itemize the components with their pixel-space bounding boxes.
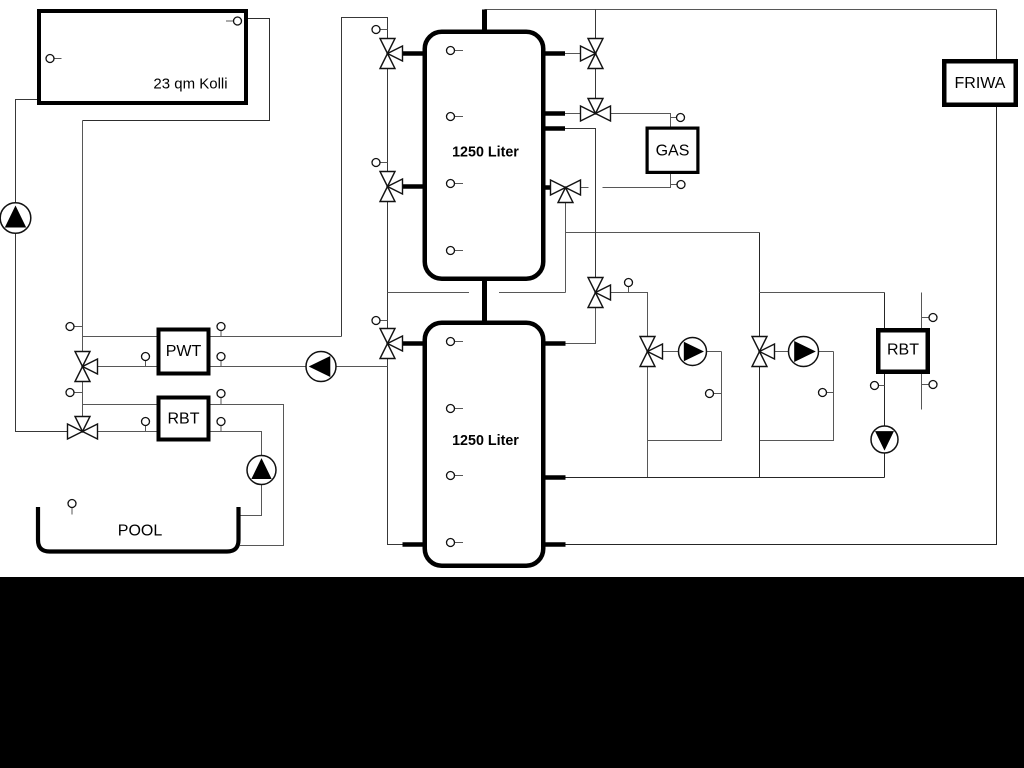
svg-text:1250 Liter: 1250 Liter [452, 145, 519, 161]
svg-text:GAS: GAS [656, 143, 690, 160]
svg-text:RBT: RBT [887, 341, 919, 358]
svg-text:POOL: POOL [118, 522, 163, 539]
svg-text:PWT: PWT [166, 343, 202, 360]
svg-text:FRIWA: FRIWA [955, 75, 1006, 92]
svg-text:23 qm Kolli: 23 qm Kolli [153, 76, 227, 93]
svg-text:1250 Liter: 1250 Liter [452, 433, 519, 449]
svg-text:RBT: RBT [168, 411, 200, 428]
